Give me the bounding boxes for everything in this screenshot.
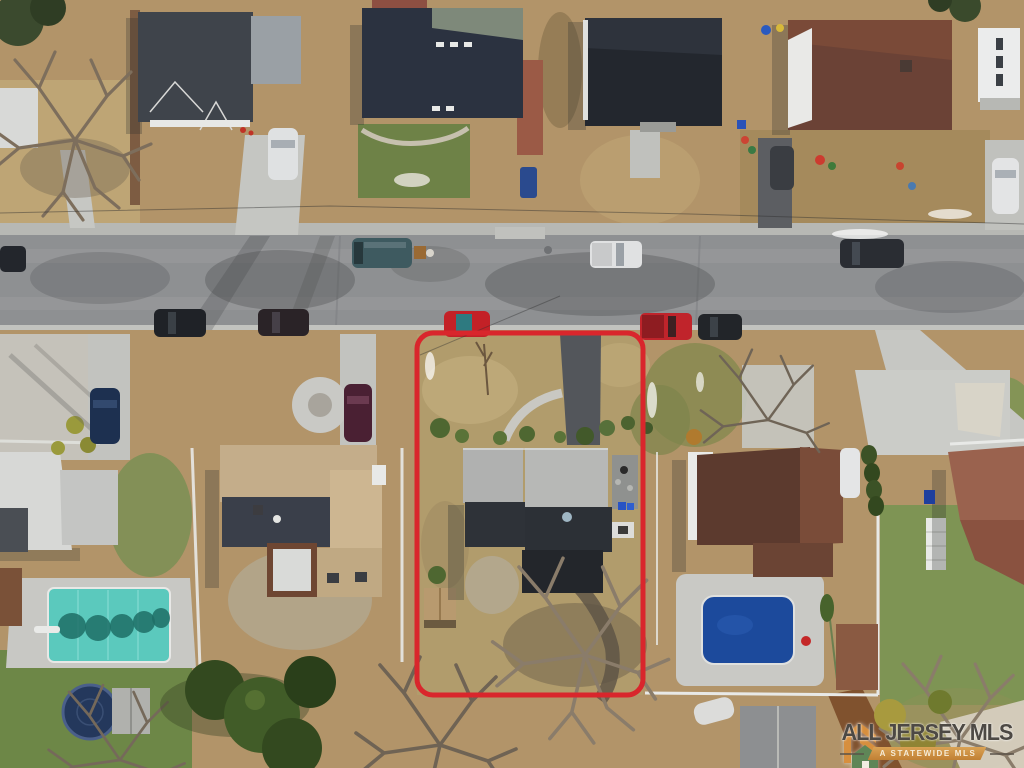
pickup-red-bed [642, 315, 664, 338]
toy-green-1 [828, 162, 836, 170]
banner-rule-left [840, 753, 864, 755]
hedge-pool-right [820, 594, 834, 622]
house-c-roof-dark [0, 508, 28, 552]
sedan-dark-parked2-glass [272, 312, 280, 333]
car-white-top-right [992, 158, 1019, 214]
mls-watermark: ALL JERSEY MLS A STATEWIDE MLS [836, 719, 1018, 760]
house-b-lawn-decor [394, 173, 430, 187]
worker-cart [414, 246, 426, 259]
pickup-red-glass [668, 316, 676, 337]
pebble-patch-right [955, 383, 1005, 437]
subject-ac-unit [618, 526, 628, 534]
subject-bush-7 [599, 420, 615, 436]
diving-board [34, 626, 60, 633]
mls-logo-subtitle: A STATEWIDE MLS [868, 747, 987, 760]
house-d-ac1 [327, 573, 339, 583]
house-b-dormer3 [464, 42, 472, 47]
subject-bush-6 [576, 427, 594, 445]
toy-blue-1 [908, 182, 916, 190]
aerial-photo [0, 0, 1024, 768]
pool-cover-circle2 [85, 615, 111, 641]
suv-dark-glass [852, 242, 860, 265]
subject-deck-chair1 [615, 479, 621, 485]
car-maroon [344, 384, 372, 442]
subject-shed-side [424, 620, 456, 628]
bin-blue-g [924, 490, 935, 504]
patio-brick-right [836, 624, 878, 690]
house-c2-trim [583, 20, 588, 120]
house-b-dormer5 [446, 106, 454, 111]
snow-patch-4 [928, 209, 972, 219]
car-blue-house-b [520, 167, 537, 198]
car-white-house-a-glass [271, 140, 295, 148]
subject-deck-grill [620, 466, 628, 474]
house-d-ac2 [355, 572, 367, 582]
car-darkblue-glass [93, 400, 117, 408]
cypress-e-2 [864, 463, 880, 483]
subject-bush-1 [430, 418, 450, 438]
mls-watermark-text: ALL JERSEY MLS A STATEWIDE MLS [836, 719, 1018, 760]
van-roof-rack [364, 242, 406, 248]
sedan-dark-parked1-glass [168, 312, 176, 334]
toy-red-1 [815, 155, 825, 165]
subject-house-vent [562, 512, 572, 522]
pool-cover-circle3 [110, 614, 134, 638]
subject-bush-2 [455, 429, 469, 443]
bin-blue-subject-1 [618, 502, 626, 510]
garage-white-slit3 [996, 74, 1003, 86]
house-b-dormer4 [432, 106, 440, 111]
mls-logo-title: ALL JERSEY MLS [841, 719, 1012, 746]
pool-cover-circle4 [133, 611, 155, 633]
street-shadow-1 [30, 252, 170, 304]
subject-house-roof-right-top [525, 448, 608, 507]
subject-bush-5 [554, 431, 566, 443]
car-darkblue-bottom-left [90, 388, 120, 444]
house-d-hot-tub-cover [273, 549, 311, 591]
snow-patch-5 [696, 372, 704, 392]
house-c-roof2 [60, 470, 118, 545]
house-e-roof-dark [697, 447, 810, 545]
garage-white-slit2 [996, 56, 1003, 68]
bush-yellow-bl-3 [51, 441, 65, 455]
toy-red-2 [896, 162, 904, 170]
deck-brown-left [0, 568, 22, 626]
house-d-satellite [273, 515, 281, 523]
car-white-house-a [268, 128, 298, 180]
bin-blue-subject-2 [627, 503, 634, 510]
sedan-dark-parked2 [258, 309, 309, 336]
subject-house-shadow [448, 505, 464, 600]
house-d2-chimney [900, 60, 912, 72]
cypress-e-1 [861, 445, 877, 465]
lawn-e-front-olive2 [630, 385, 690, 455]
house-c2-steps [640, 122, 676, 132]
subject-house-roof-left-top [463, 448, 523, 503]
toy-yellow-gap [776, 24, 784, 32]
sedan-dark-parked1 [154, 309, 206, 337]
toy-green-2 [748, 146, 756, 154]
subject-lawn-light [422, 356, 518, 424]
subject-bush-3 [493, 431, 507, 445]
house-d2-shadow [772, 25, 790, 135]
subject-deck-chair2 [627, 485, 633, 491]
lawn-c-backyard [108, 453, 192, 577]
car-dark-left-edge [0, 246, 26, 272]
fence-white-e-bottom [645, 693, 878, 695]
house-a-flowers2 [249, 131, 254, 136]
sedan-dark-parked3 [698, 314, 742, 340]
subject-tree-shadow [503, 603, 647, 687]
sedan-dark-parked3-glass [710, 317, 718, 337]
snow-patch-2 [647, 382, 657, 418]
garage-white-base [980, 98, 1020, 110]
bush-orange-e [686, 429, 702, 445]
curb-bottom [0, 325, 1024, 330]
suv-dark-street [840, 239, 904, 268]
house-d2-gable-wall [788, 28, 812, 128]
car-dark-house-d2 [770, 146, 794, 190]
car-white-house-e [840, 448, 860, 498]
house-d-chimney [253, 505, 263, 515]
bin-blue-c2 [737, 120, 746, 129]
house-e-extension [753, 543, 833, 577]
pool-cover-circle5 [152, 608, 170, 628]
house-b-dormer1 [436, 42, 444, 47]
snow-patch-3 [832, 229, 888, 239]
pickup-white-bed [592, 243, 612, 266]
toy-red-3 [741, 136, 749, 144]
evergreen-bl-hl [245, 690, 265, 710]
mls-icon-door [862, 761, 869, 768]
cypress-e-4 [868, 496, 884, 516]
house-b-dormer2 [450, 42, 458, 47]
banner-rule-right [990, 753, 1014, 755]
walk-house-c2 [630, 130, 660, 178]
house-a-wall [150, 120, 250, 127]
house-d-shadow [205, 470, 219, 588]
car-maroon-glass [347, 396, 369, 404]
house-g-shadow [932, 470, 946, 570]
street-shadow-5 [875, 261, 1024, 313]
worker-person [426, 249, 434, 257]
manhole [544, 246, 552, 254]
subject-bush-4 [519, 426, 535, 442]
gravel-subject [465, 556, 519, 614]
bush-olive-br-3 [928, 690, 952, 714]
subject-house-roof-left-dark [465, 502, 525, 547]
house-g-roof-light [948, 446, 1024, 520]
house-d-extension [317, 548, 382, 597]
garage-white-slit1 [996, 38, 1003, 50]
patio-circle-inner [308, 393, 332, 417]
subject-bush-corner [428, 566, 446, 584]
house-a-wing [251, 16, 301, 84]
evergreen-bl-3 [284, 656, 336, 708]
subject-bush-8 [621, 416, 635, 430]
pickup-white-glass [616, 243, 624, 266]
house-d-porch [372, 465, 386, 485]
apron-blue-car-top [495, 227, 545, 239]
pool-cover-circle1 [58, 613, 86, 639]
aerial-listing-photo: ALL JERSEY MLS A STATEWIDE MLS [0, 0, 1024, 768]
house-e-roof-light [800, 447, 843, 545]
house-b-shadow [350, 25, 364, 125]
car-white-top-right-glass [995, 170, 1016, 178]
pool-right-red-item [801, 636, 811, 646]
house-a-flowers1 [240, 127, 246, 133]
house-e-shadow [672, 460, 686, 572]
bin-blue-gap [761, 25, 771, 35]
pool-right-sheen [717, 615, 753, 635]
van-windshield [354, 242, 363, 264]
snow-patch-1 [425, 352, 435, 380]
